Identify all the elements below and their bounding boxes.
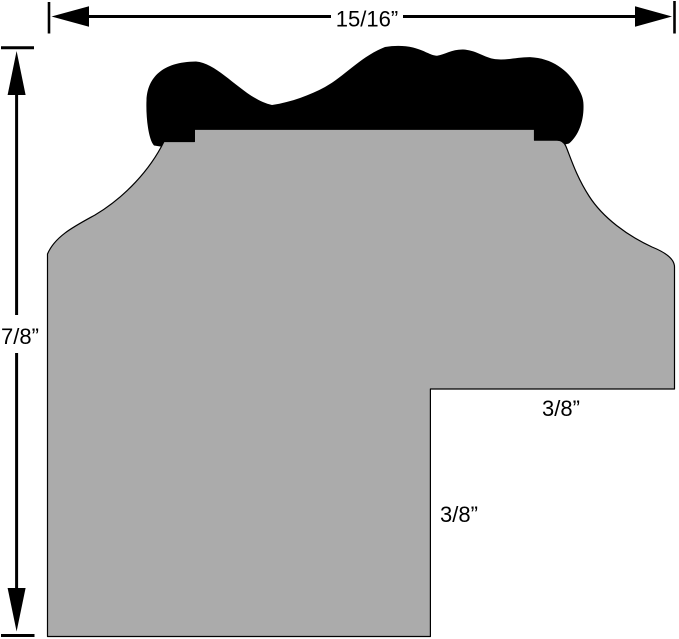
svg-text:15/16”: 15/16”	[336, 7, 398, 32]
svg-text:3/8”: 3/8”	[440, 502, 478, 527]
svg-text:3/8”: 3/8”	[542, 396, 580, 421]
svg-text:7/8”: 7/8”	[1, 324, 39, 349]
